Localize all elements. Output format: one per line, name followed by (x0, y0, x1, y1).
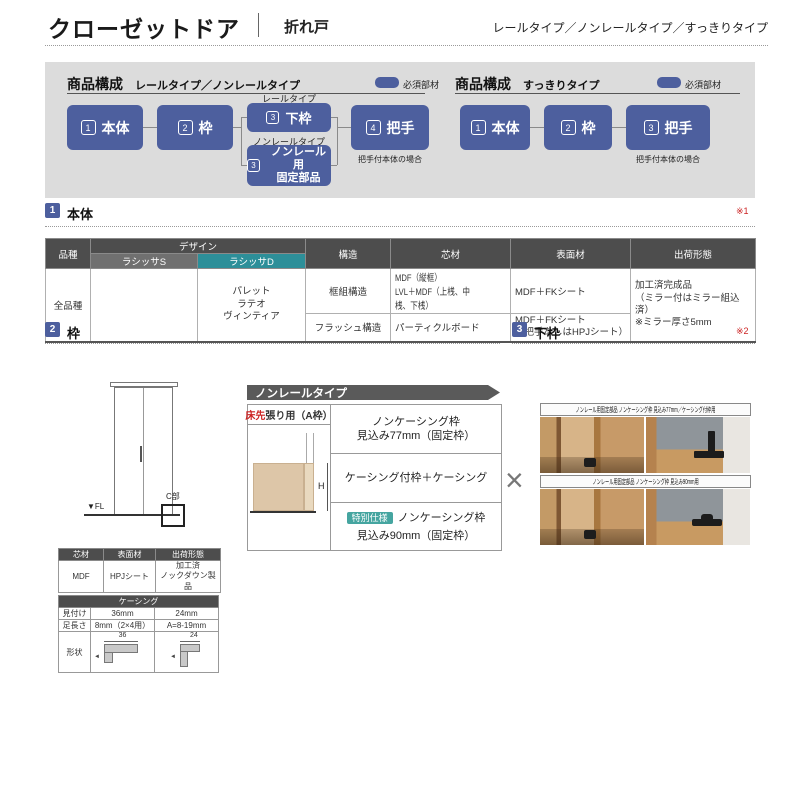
casing-ashinagasa-1: 8mm（2×4用） (91, 620, 155, 632)
section1-divider (45, 226, 755, 227)
photo-bracket-77 (646, 417, 750, 473)
flowbox-body-label: 本体 (492, 118, 520, 138)
flowbox-frame: 2 枠 (157, 105, 233, 150)
table-row: 形状 36 ◄ 24 ◄ (59, 632, 219, 673)
casing-ashinagasa-2: A=8-19mm (155, 620, 219, 632)
floor-level-label: ▼FL (87, 502, 104, 511)
dimension-line (180, 641, 200, 642)
flowbox-frame: 2 枠 (544, 105, 612, 150)
nonrail-option-3-line1: 特別仕様ノンケーシング枠 (347, 510, 486, 528)
flowbox-handle-number: 4 (366, 120, 381, 135)
cell-hyomenzai-2: MDF＋FKシート （把手なしはHPJシート） (511, 314, 631, 342)
profile-leg (104, 652, 113, 663)
bracket-base (692, 519, 722, 526)
h-dimension-line (327, 463, 328, 511)
casing-label-ashinagasa: 足長さ (59, 620, 91, 632)
flowbox-handle-label: 把手 (665, 118, 693, 138)
section1-title: 本体 (67, 204, 93, 223)
section2-title: 枠 (67, 323, 80, 342)
flowbox-frame-label: 枠 (582, 118, 596, 138)
frame-material-table: 芯材 表面材 出荷形態 MDF HPJシート 加工済 ノックダウン製品 (58, 548, 221, 593)
door-fold-line (143, 388, 144, 514)
fixing-bracket (692, 519, 722, 531)
c-detail-label: C部 (166, 491, 180, 502)
handle-note: 把手付本体の場合 (345, 154, 435, 165)
fastener-arrow-icon: ◄ (170, 654, 176, 660)
profile-36-dim: 36 (119, 632, 127, 639)
casing-shape-36-cell: 36 ◄ (91, 632, 155, 673)
photo-caption-77: ノンレール用固定部品 ノンケーシング枠 見込み77mm／ケーシング付枠用 (540, 403, 751, 416)
col-header-kozo: 構造 (306, 239, 391, 269)
profile-leg (180, 651, 188, 667)
catalog-page: クローゼットドア .page > div[data-name="page-tit… (0, 0, 800, 800)
mat-value-shukka: 加工済 ノックダウン製品 (156, 561, 221, 593)
nonrail-left-column: 床先張り用（A枠） H (248, 405, 331, 550)
flowbox-handle: 4 把手 (351, 105, 429, 150)
nonrail-option-2: ケーシング付枠＋ケーシング (345, 470, 488, 488)
connector-line (233, 127, 241, 128)
cell-lasissa-s (91, 269, 198, 342)
casing-profile-36: 36 ◄ (92, 632, 153, 672)
special-spec-badge: 特別仕様 (347, 512, 393, 524)
flowbox-handle: 3 把手 (626, 105, 710, 150)
legend-swatch (375, 77, 399, 88)
fastener-arrow-icon: ◄ (94, 654, 100, 660)
flowbox-frame-number: 2 (561, 120, 576, 135)
table-row: 全品種 パレット ラテオ ヴィンティア 框組構造 MDF（縦框） LVL＋MDF… (46, 269, 756, 314)
nonrail-banner: ノンレールタイプ (247, 385, 500, 400)
flowbox-nonrail-parts-label: ノンレール用 固定部品 (266, 146, 331, 186)
flowbox-body: 1 本体 (67, 105, 143, 150)
flowbox-lower-frame-label: 下枠 (285, 108, 311, 127)
photo-bracket-90 (646, 489, 750, 545)
flowbox-lower-frame-number: 3 (266, 111, 279, 124)
legend-label: 必須部材 (403, 78, 439, 91)
connector-line (337, 127, 351, 128)
title-divider (258, 13, 259, 37)
cell-kozo-2: フラッシュ構造 (306, 314, 391, 342)
flowbox-body: 1 本体 (460, 105, 530, 150)
cell-lasissa-d: パレット ラテオ ヴィンティア (198, 269, 306, 342)
cell-shinzai-1: MDF（縦框） LVL＋MDF（上桟、中桟、下桟） (391, 269, 511, 314)
connector-line (530, 127, 544, 128)
c-detail-box (161, 504, 185, 527)
flowbox-nonrail-parts-number: 3 (247, 159, 260, 172)
table-row: 足長さ 8mm（2×4用） A=8-19mm (59, 620, 219, 632)
flowbox-nonrail-parts: 3 ノンレール用 固定部品 (247, 145, 331, 186)
floor-first-header: 床先張り用（A枠） (248, 405, 330, 425)
dimension-line (104, 641, 138, 642)
section3-title: 下枠 (534, 323, 560, 342)
section2-badge: 2 (45, 322, 60, 337)
bracket-hump (701, 514, 713, 520)
casing-mitsuke-36: 36mm (91, 608, 155, 620)
comp-left-title: 商品構成 (67, 74, 123, 94)
connector-line (143, 127, 157, 128)
section3-ref: ※2 (736, 326, 749, 337)
comp-left-subtitle: レールタイプ／ノンレールタイプ (135, 77, 300, 93)
handle-note: 把手付本体の場合 (623, 154, 713, 165)
nonrail-option-3-line2: 見込み90mm（固定枠） (357, 528, 476, 546)
header-divider (45, 45, 768, 46)
mat-value-shinzai: MDF (59, 561, 104, 593)
nonrail-option-row: ケーシング付枠＋ケーシング (331, 455, 501, 503)
photo-row (540, 489, 751, 545)
mat-header-shukka: 出荷形態 (156, 549, 221, 561)
flowbox-handle-number: 3 (644, 120, 659, 135)
legend-swatch (657, 77, 681, 88)
flowbox-body-number: 1 (81, 120, 96, 135)
flowbox-lower-frame: 3 下枠 (247, 103, 331, 132)
h-dimension-label: H (318, 481, 325, 491)
casing-table: ケーシング 見付け 36mm 24mm 足長さ 8mm（2×4用） A=8-19… (58, 595, 219, 673)
profile-24-dim: 24 (190, 632, 198, 639)
floor-first-header-red: 床先 (245, 407, 265, 422)
composition-panel: 商品構成 レールタイプ／ノンレールタイプ 必須部材 1 本体 2 枠 レールタイ… (45, 62, 755, 198)
col-header-shinzai: 芯材 (391, 239, 511, 269)
type-list: レールタイプ／ノンレールタイプ／すっきりタイプ (492, 19, 768, 36)
photo-caption-90: ノンレール用固定部品 ノンケーシング枠 見込み90mm用 (540, 475, 751, 488)
section3-divider (512, 343, 755, 344)
frame-cross-section (253, 463, 304, 511)
multiply-mark: × (505, 462, 524, 499)
section1-ref: ※1 (736, 206, 749, 217)
fixing-part (584, 458, 596, 467)
wall-line (306, 433, 307, 463)
casing-shape-24-cell: 24 ◄ (155, 632, 219, 673)
section3-badge: 3 (512, 322, 527, 337)
connector-line (337, 117, 338, 165)
fixing-bracket (694, 431, 724, 458)
frame-jamb-strip (304, 463, 314, 511)
nonrail-option-1: ノンケーシング枠 見込み77mm（固定枠） (357, 415, 476, 444)
mat-header-hyomenzai: 表面材 (104, 549, 156, 561)
door-handle-mark (140, 446, 142, 462)
fixing-parts-photo-panel: ノンレール用固定部品 ノンケーシング枠 見込み77mm／ケーシング付枠用 ノンレ… (540, 403, 751, 545)
comp-right-title: 商品構成 (455, 74, 511, 94)
nonrail-option-3-text: ノンケーシング枠 (398, 512, 486, 524)
photo-row (540, 417, 751, 473)
photo-caption-90-text: ノンレール用固定部品 ノンケーシング枠 見込み90mm用 (592, 477, 698, 487)
legend-label: 必須部材 (685, 78, 721, 91)
mat-header-shinzai: 芯材 (59, 549, 104, 561)
cell-kozo-1: 框組構造 (306, 269, 391, 314)
col-header-lasissa-d: ラシッサD (198, 254, 306, 269)
photo-caption-77-text: ノンレール用固定部品 ノンケーシング枠 見込み77mm／ケーシング付枠用 (576, 405, 716, 415)
flowbox-body-label: 本体 (102, 118, 130, 138)
casing-profile-24: 24 ◄ (156, 632, 217, 672)
connector-line (241, 117, 242, 165)
table-row: MDF HPJシート 加工済 ノックダウン製品 (59, 561, 221, 593)
col-header-design: デザイン (91, 239, 306, 254)
nonrail-frame-table: 床先張り用（A枠） H ノンケーシング枠 見込み77mm（固定枠） ケーシング付… (247, 404, 502, 551)
col-header-hinshu: 品種 (46, 239, 91, 269)
section1-badge: 1 (45, 203, 60, 218)
page-subtitle: 折れ戸 (284, 16, 329, 37)
casing-label-keijo: 形状 (59, 632, 91, 673)
floor-line (250, 511, 316, 513)
table-row: 見付け 36mm 24mm (59, 608, 219, 620)
flowbox-frame-label: 枠 (199, 118, 213, 138)
comp-right-subtitle: すっきりタイプ (523, 77, 600, 93)
flowbox-body-number: 1 (471, 120, 486, 135)
comp-left-underline (67, 93, 425, 94)
col-header-lasissa-s: ラシッサS (91, 254, 198, 269)
connector-line (612, 127, 626, 128)
photo-door-corner-77 (540, 417, 644, 473)
photo-door-corner-90 (540, 489, 644, 545)
body-spec-table: 品種 デザイン 構造 芯材 表面材 出荷形態 ラシッサS ラシッサD 全品種 パ… (45, 238, 756, 343)
flowbox-handle-label: 把手 (387, 118, 415, 138)
floor-first-header-rest: 張り用（A枠） (265, 407, 332, 422)
cell-hyomenzai-1: MDF＋FKシート (511, 269, 631, 314)
mat-value-hyomenzai: HPJシート (104, 561, 156, 593)
nonrail-option-row: 特別仕様ノンケーシング枠 見込み90mm（固定枠） (331, 504, 501, 551)
wall-line (313, 433, 314, 463)
cell-shinzai-1-text: MDF（縦框） LVL＋MDF（上桟、中桟、下桟） (395, 270, 484, 312)
comp-right-underline (455, 93, 740, 94)
nonrail-option-row: ノンケーシング枠 見込み77mm（固定枠） (331, 405, 501, 454)
casing-mitsuke-24: 24mm (155, 608, 219, 620)
col-header-shukka: 出荷形態 (631, 239, 756, 269)
page-title: クローゼットドア (48, 10, 240, 44)
fixing-part (584, 530, 596, 539)
bracket-horizontal (694, 451, 724, 458)
casing-label-mitsuke: 見付け (59, 608, 91, 620)
connector-line (331, 165, 337, 166)
casing-title: ケーシング (59, 596, 219, 608)
flowbox-frame-number: 2 (178, 120, 193, 135)
col-header-hyomenzai: 表面材 (511, 239, 631, 269)
section2-divider (45, 343, 500, 344)
cell-shinzai-2: パーティクルボード (391, 314, 511, 342)
